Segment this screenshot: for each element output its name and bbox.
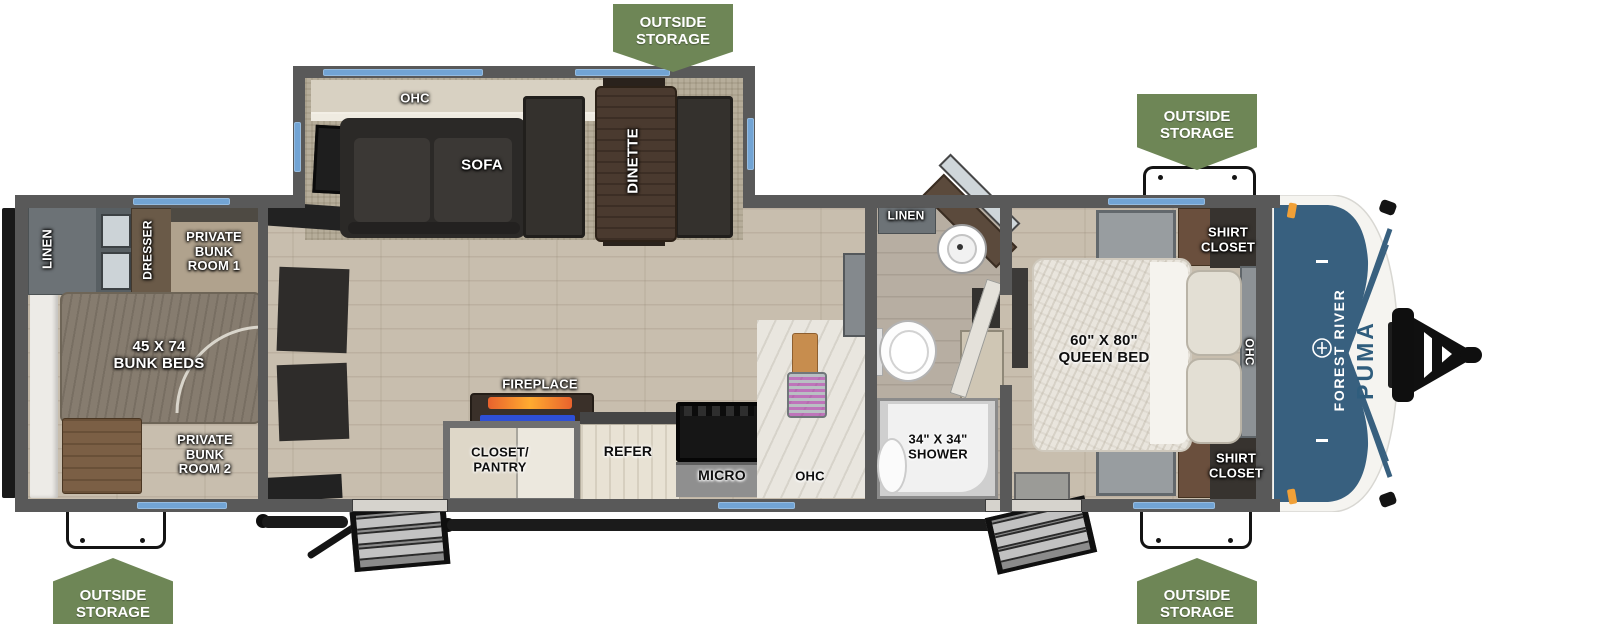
outside-storage-label: OUTSIDE STORAGE (76, 587, 150, 622)
refrigerator (580, 424, 680, 507)
toilet-seat (889, 330, 929, 374)
sofa-front-edge (348, 222, 520, 234)
micro-label: MICRO (698, 468, 746, 484)
bunk-room2-label: PRIVATE BUNK ROOM 2 (177, 433, 233, 477)
outside-storage-badge-bottom-left: OUTSIDE STORAGE (53, 558, 173, 624)
floorplan-canvas: OUTSIDE STORAGE OUTSIDE STORAGE OUTSIDE … (0, 0, 1600, 624)
refer-label: REFER (604, 444, 652, 460)
hatch-latch (1158, 175, 1163, 180)
awning-roller (447, 519, 1017, 531)
entry-steps-main (350, 504, 451, 572)
slideout-window-left (323, 69, 483, 76)
bathroom-wall-left (865, 195, 877, 512)
closet-pantry-label: CLOSET/ PANTRY (471, 445, 529, 474)
outside-storage-label: OUTSIDE STORAGE (1160, 108, 1234, 143)
hatch-latch (1156, 538, 1161, 543)
entry-door-main (352, 499, 448, 512)
bunk-top-window (133, 198, 230, 205)
bedroom-ohc-label: OHC (1242, 338, 1255, 365)
rear-wall (15, 195, 28, 512)
sofa-cushion-left (354, 138, 430, 222)
outside-storage-label: OUTSIDE STORAGE (636, 14, 710, 49)
manufacturer-logo-text: FOREST RIVER (1332, 289, 1348, 412)
shirt-closet-top-label: SHIRT CLOSET (1201, 225, 1255, 254)
hatch-latch (80, 538, 85, 543)
slideout-side-window-right (747, 118, 754, 170)
model-logo-text: PUMA (1353, 320, 1379, 400)
bedroom-door-cabinet (1014, 472, 1070, 502)
bottom-wall-mid (448, 499, 985, 512)
ohc-label: OHC (400, 92, 430, 107)
fireplace-label: FIREPLACE (502, 378, 577, 393)
slideout-side-window-left (294, 122, 301, 172)
bunk-beds-label: 45 X 74 BUNK BEDS (114, 339, 205, 373)
outside-storage-badge-top: OUTSIDE STORAGE (613, 4, 733, 72)
dinette-label: DINETTE (626, 128, 643, 194)
stove-knobs (684, 406, 754, 416)
dresser-label: DRESSER (141, 220, 154, 279)
cutting-board (792, 333, 818, 375)
bunk-bottom-window (137, 502, 227, 509)
shirt-closet-bottom-label: SHIRT CLOSET (1209, 451, 1263, 480)
bedroom-bottom-window (1133, 502, 1215, 509)
hitch (1388, 300, 1488, 410)
ohc-kitchen-label: OHC (795, 470, 825, 485)
bedroom-foot-cabinet (1012, 268, 1028, 368)
bathroom-wall-right-bottom (1000, 385, 1012, 512)
fireplace-flame (488, 397, 572, 409)
bedroom-wardrobe-top (1096, 210, 1176, 264)
sink-faucet (957, 244, 963, 250)
sofa-overhead-cabinet (311, 80, 643, 116)
bathroom-wall-right-top (1000, 195, 1012, 295)
pillow-top (1186, 270, 1242, 356)
outside-storage-badge-bottom-right: OUTSIDE STORAGE (1137, 558, 1257, 624)
queen-bed-sheet (1150, 262, 1188, 444)
storage-hatch-bottom-right (1140, 512, 1252, 549)
storage-hatch-top-bedroom (1143, 166, 1256, 198)
rear-linen-label: LINEN (41, 229, 56, 269)
hatch-latch (140, 538, 145, 543)
shower-seat (877, 438, 907, 494)
kitchen-bottom-window (718, 502, 795, 509)
sofa-cushion-right (434, 138, 512, 222)
sofa-label: SOFA (461, 158, 503, 175)
bath-linen-label: LINEN (888, 209, 925, 222)
kitchen-sink (787, 372, 827, 418)
outside-storage-label: OUTSIDE STORAGE (1160, 587, 1234, 622)
slideout-window-right (575, 69, 670, 76)
hatch-latch (1228, 538, 1233, 543)
dinette-bench-left (523, 96, 585, 238)
queen-bed-label: 60" X 80" QUEEN BED (1059, 333, 1150, 367)
shower-label: 34" X 34" SHOWER (908, 432, 968, 461)
bedroom-top-window (1108, 198, 1205, 205)
hatch-latch (1232, 175, 1237, 180)
pillow-bottom (1186, 358, 1242, 444)
bunk-divider-wall (258, 195, 268, 512)
bunk-room1-label: PRIVATE BUNK ROOM 1 (186, 230, 242, 274)
dinette-bench-right (675, 96, 733, 238)
outside-storage-badge-top-right: OUTSIDE STORAGE (1137, 94, 1257, 170)
